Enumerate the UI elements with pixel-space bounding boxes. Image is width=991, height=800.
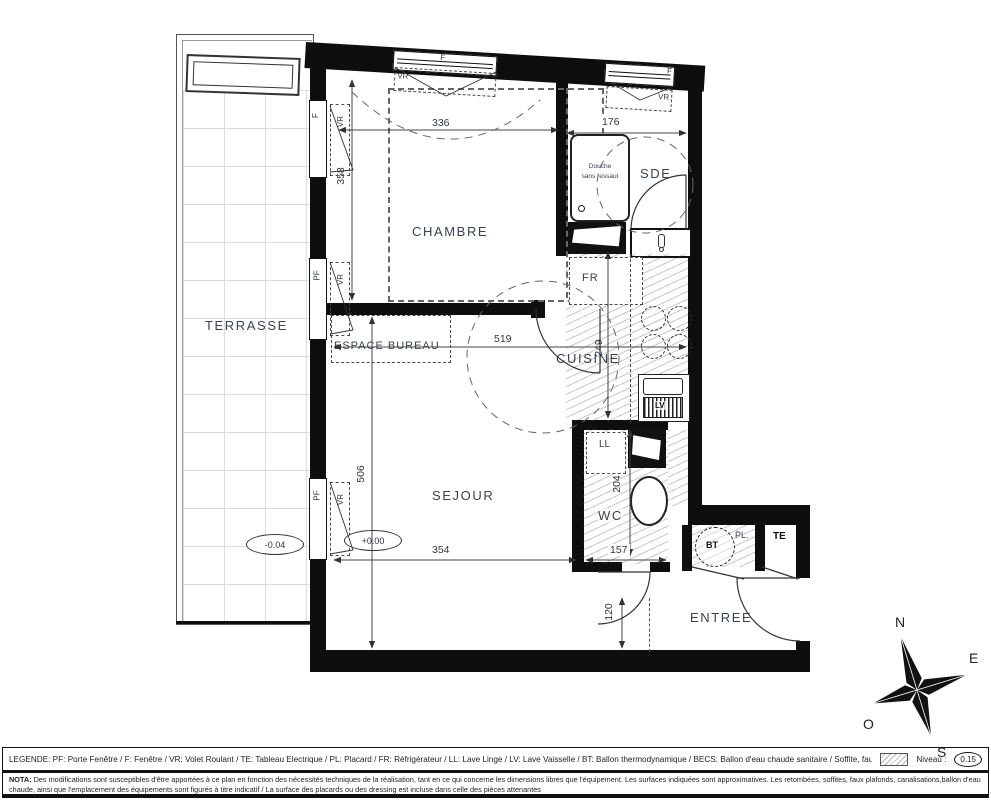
compass-rose: N E O S <box>855 605 985 765</box>
entree-dashed-boundary <box>649 598 650 652</box>
floor-plan-sheet: TERRASSE F F VR VR F VR PF <box>0 0 991 800</box>
wall-left-seg3 <box>310 336 326 478</box>
soffit-hatch-swatch <box>880 753 908 766</box>
room-label-wc: WC <box>598 508 623 523</box>
terrace-planter <box>185 54 300 96</box>
level-marker-terrasse: -0.04 <box>246 534 304 555</box>
room-label-entree: ENTREE <box>690 610 752 625</box>
room-label-sejour: SEJOUR <box>432 488 494 503</box>
sde-vanity-basin <box>571 225 623 251</box>
espace-bureau-box <box>331 315 451 363</box>
dim-506: 506 <box>355 463 367 485</box>
dim-249: 249 <box>593 337 605 359</box>
cooktop-burner-3 <box>641 334 666 359</box>
laundry-appliance-front <box>632 432 662 464</box>
dishwasher-label: LV <box>654 401 666 410</box>
window-f-label: F <box>667 66 672 75</box>
dim-120: 120 <box>603 601 615 623</box>
te-label: TE <box>773 531 786 542</box>
basin-symbol-dot <box>659 247 664 252</box>
dim-157: 157 <box>608 544 630 556</box>
level-value: -0.04 <box>265 540 286 550</box>
fridge-box: FR <box>569 257 643 305</box>
wall-right-upper <box>688 68 702 510</box>
wall-left-seg2 <box>310 176 326 258</box>
compass-o: O <box>863 716 874 732</box>
room-label-terrasse: TERRASSE <box>205 318 288 333</box>
niveau-label: Niveau : <box>916 755 946 764</box>
dim-354: 354 <box>430 544 452 556</box>
cooktop-burner-2 <box>667 306 692 331</box>
kitchen-sink-unit: LV <box>638 374 690 422</box>
wall-left-seg4 <box>310 558 326 655</box>
nota-box: NOTA: Des modifications sont susceptible… <box>2 771 989 798</box>
shower-drain <box>578 205 585 212</box>
window-f-label: F <box>440 53 445 62</box>
laundry-appliance <box>628 428 666 468</box>
room-label-sde: SDE <box>640 166 672 181</box>
wall-closet-left <box>682 525 692 571</box>
te-closet: TE <box>765 525 796 567</box>
niveau-value: 0.15 <box>954 752 982 767</box>
legend-text: LEGENDE: PF: Porte Fenêtre / F: Fenêtre … <box>9 755 872 764</box>
window-f-label: F <box>311 113 320 118</box>
shower-label-line2: sans ressaut <box>572 172 628 182</box>
wall-top: F F <box>304 42 705 92</box>
washing-machine-label: LL <box>599 439 610 450</box>
window-f-sde: F <box>604 63 675 87</box>
wall-hall-top <box>688 505 810 525</box>
level-value: +0.00 <box>362 536 385 546</box>
sde-vanity <box>568 222 626 254</box>
window-pf-2: PF <box>309 478 327 560</box>
sink-bowl <box>643 378 683 395</box>
window-pf-1: PF <box>309 258 327 340</box>
hall-soffit-hatch <box>668 430 688 506</box>
terrace-planter-inner <box>193 61 294 88</box>
dim-204: 204 <box>611 473 623 495</box>
dim-358: 358 <box>335 165 347 187</box>
vr-label: VR <box>397 71 409 81</box>
dim-176: 176 <box>600 116 622 128</box>
room-label-espace-bureau: ESPACE BUREAU <box>334 340 440 352</box>
vr-label: VR <box>336 494 345 505</box>
window-pf-label: PF <box>313 490 322 500</box>
wall-chambre-sejour <box>326 303 538 315</box>
room-label-chambre: CHAMBRE <box>412 224 488 239</box>
wall-bottom <box>310 650 810 672</box>
compass-n: N <box>895 614 905 630</box>
vr-label: VR <box>658 92 670 102</box>
level-marker-sejour: +0.00 <box>344 530 402 551</box>
legend-bar: LEGENDE: PF: Porte Fenêtre / F: Fenêtre … <box>2 747 989 771</box>
vr-box-sde-top: VR <box>605 86 672 112</box>
room-label-cuisine: CUISINE <box>556 351 620 366</box>
vr-label: VR <box>336 274 345 285</box>
wall-right-lower <box>796 525 810 578</box>
wall-closet-divider <box>755 525 765 571</box>
washing-machine-box: LL <box>586 432 626 474</box>
nota-label: NOTA: <box>9 775 32 784</box>
chambre-door-stub <box>531 300 545 318</box>
bt-label: BT <box>706 540 718 550</box>
window-f-left: F <box>309 100 327 178</box>
compass-star <box>857 621 981 749</box>
vr-label: VR <box>336 116 345 127</box>
cooktop-burner-1 <box>641 306 666 331</box>
kitchen-counter-edge <box>630 254 631 422</box>
dim-519: 519 <box>492 333 514 345</box>
placard-label: PL. <box>735 530 749 540</box>
bt-tank: BT <box>695 527 735 567</box>
terrace-bottom-line <box>176 621 312 624</box>
nota-text: Des modifications sont susceptibles d'êt… <box>9 775 981 794</box>
dim-336: 336 <box>430 117 452 129</box>
dishwasher: LV <box>643 397 683 418</box>
toilet <box>630 476 668 526</box>
shower: Douche sans ressaut <box>570 134 630 222</box>
cooktop-burner-4 <box>667 334 692 359</box>
fridge-label: FR <box>582 272 599 284</box>
window-glass <box>609 71 671 80</box>
compass-e: E <box>969 650 978 666</box>
window-pf-label: PF <box>313 270 322 280</box>
shower-label-line1: Douche <box>572 162 628 172</box>
basin-symbol <box>658 234 665 248</box>
